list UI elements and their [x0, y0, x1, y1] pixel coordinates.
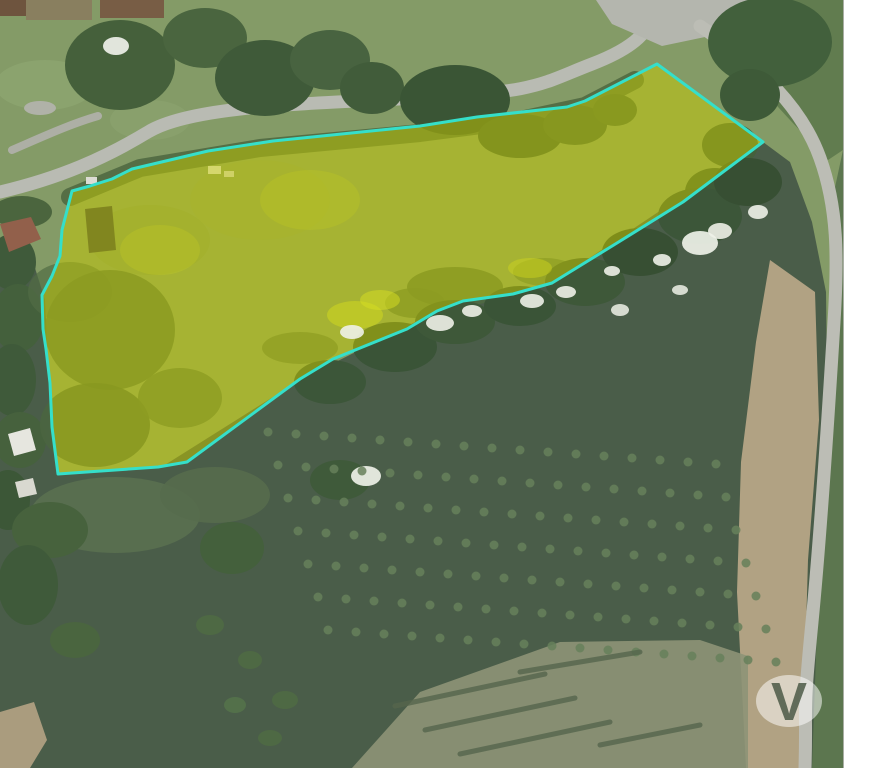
orchard-row-dots — [442, 473, 451, 482]
orchard-row-dots — [480, 508, 489, 517]
orchard-row-dots — [572, 450, 581, 459]
orchard-row-dots — [376, 436, 385, 445]
orchard-row-dots — [694, 491, 703, 500]
tree-cluster — [50, 622, 100, 658]
orchard-row-dots — [388, 566, 397, 575]
orchard-row-dots — [350, 531, 359, 540]
orchard-row-dots — [724, 590, 733, 599]
orchard-row-dots — [398, 599, 407, 608]
meadow-patch — [160, 467, 270, 523]
orchard-row-dots — [518, 543, 527, 552]
orchard-row-dots — [742, 559, 751, 568]
orchard-row-dots — [416, 568, 425, 577]
orchard-row-dots — [622, 615, 631, 624]
orchard-row-dots — [292, 430, 301, 439]
garden-plot — [100, 0, 164, 18]
aerial-photo: V — [0, 0, 843, 768]
garden-plot — [26, 0, 92, 20]
orchard-row-dots — [358, 467, 367, 476]
orchard-row-dots — [706, 621, 715, 630]
orchard-row-dots — [492, 638, 501, 647]
orchard-row-dots — [352, 628, 361, 637]
orchard-row-dots — [432, 440, 441, 449]
orchard-row-dots — [660, 650, 669, 659]
orchard-row-dots — [436, 634, 445, 643]
tree-cluster — [708, 0, 832, 87]
parcel-bright-patch — [260, 170, 360, 230]
orchard-row-dots — [342, 595, 351, 604]
orchard-row-dots — [536, 512, 545, 521]
garden-plot — [0, 0, 26, 16]
small-tree — [272, 691, 298, 709]
orchard-row-dots — [396, 502, 405, 511]
orchard-row-dots — [520, 640, 529, 649]
orchard-row-dots — [470, 475, 479, 484]
orchard-row-dots — [576, 644, 585, 653]
orchard-row-dots — [508, 510, 517, 519]
tree-cluster — [340, 62, 404, 114]
orchard-row-dots — [324, 626, 333, 635]
orchard-row-dots — [676, 522, 685, 531]
orchard-row-dots — [460, 442, 469, 451]
orchard-row-dots — [472, 572, 481, 581]
parcel-bright-patch — [508, 258, 552, 278]
blossom-tree — [340, 325, 364, 339]
orchard-row-dots — [498, 477, 507, 486]
orchard-row-dots — [380, 630, 389, 639]
orchard-row-dots — [462, 539, 471, 548]
orchard-row-dots — [704, 524, 713, 533]
blossom-tree — [103, 37, 129, 55]
orchard-row-dots — [648, 520, 657, 529]
orchard-row-dots — [762, 625, 771, 634]
blossom-tree — [653, 254, 671, 266]
orchard-row-dots — [294, 527, 303, 536]
orchard-row-dots — [332, 562, 341, 571]
tree-cluster — [720, 69, 780, 121]
orchard-row-dots — [312, 496, 321, 505]
orchard-row-dots — [666, 489, 675, 498]
orchard-row-dots — [658, 553, 667, 562]
small-tree — [258, 730, 282, 746]
orchard-row-dots — [600, 452, 609, 461]
orchard-row-dots — [340, 498, 349, 507]
orchard-row-dots — [302, 463, 311, 472]
orchard-row-dots — [424, 504, 433, 513]
right-margin-strip — [843, 0, 872, 768]
orchard-row-dots — [638, 487, 647, 496]
orchard-row-dots — [378, 533, 387, 542]
orchard-row-dots — [314, 593, 323, 602]
orchard-row-dots — [656, 456, 665, 465]
orchard-row-dots — [566, 611, 575, 620]
orchard-row-dots — [574, 547, 583, 556]
orchard-row-dots — [490, 541, 499, 550]
orchard-row-dots — [368, 500, 377, 509]
orchard-row-dots — [414, 471, 423, 480]
blossom-tree — [556, 286, 576, 298]
orchard-row-dots — [620, 518, 629, 527]
orchard-row-dots — [556, 578, 565, 587]
orchard-row-dots — [772, 658, 781, 667]
driveway-pad — [24, 101, 56, 115]
orchard-row-dots — [546, 545, 555, 554]
orchard-row-dots — [370, 597, 379, 606]
orchard-row-dots — [712, 460, 721, 469]
orchard-row-dots — [696, 588, 705, 597]
small-tree — [224, 697, 246, 713]
blossom-tree — [426, 315, 454, 331]
orchard-row-dots — [320, 432, 329, 441]
orchard-row-dots — [408, 632, 417, 641]
blossom-tree — [604, 266, 620, 276]
orchard-row-dots — [688, 652, 697, 661]
orchard-row-dots — [592, 516, 601, 525]
blossom-tree — [520, 294, 544, 308]
orchard-row-dots — [454, 603, 463, 612]
tree-cluster — [65, 20, 175, 110]
orchard-row-dots — [604, 646, 613, 655]
orchard-row-dots — [404, 438, 413, 447]
orchard-row-dots — [594, 613, 603, 622]
orchard-row-dots — [464, 636, 473, 645]
orchard-row-dots — [452, 506, 461, 515]
aerial-parcel-screenshot: V — [0, 0, 872, 768]
orchard-row-dots — [678, 619, 687, 628]
orchard-row-dots — [602, 549, 611, 558]
orchard-row-dots — [732, 526, 741, 535]
orchard-row-dots — [510, 607, 519, 616]
orchard-row-dots — [734, 623, 743, 632]
orchard-row-dots — [554, 481, 563, 490]
small-tree — [196, 615, 224, 635]
blossom-tree — [708, 223, 732, 239]
orchard-row-dots — [752, 592, 761, 601]
small-tree — [238, 651, 262, 669]
orchard-row-dots — [386, 469, 395, 478]
orchard-row-dots — [482, 605, 491, 614]
orchard-row-dots — [610, 485, 619, 494]
orchard-row-dots — [434, 537, 443, 546]
orchard-row-dots — [348, 434, 357, 443]
blossom-tree — [462, 305, 482, 317]
orchard-row-dots — [668, 586, 677, 595]
watermark-letter: V — [771, 672, 807, 732]
orchard-row-dots — [722, 493, 731, 502]
orchard-row-dots — [538, 609, 547, 618]
orchard-row-dots — [582, 483, 591, 492]
orchard-row-dots — [406, 535, 415, 544]
orchard-row-dots — [488, 444, 497, 453]
orchard-row-dots — [264, 428, 273, 437]
orchard-row-dots — [584, 580, 593, 589]
orchard-row-dots — [744, 656, 753, 665]
orchard-row-dots — [564, 514, 573, 523]
orchard-row-dots — [684, 458, 693, 467]
blossom-tree — [672, 285, 688, 295]
orchard-row-dots — [714, 557, 723, 566]
orchard-row-dots — [500, 574, 509, 583]
orchard-row-dots — [330, 465, 339, 474]
blossom-tree — [611, 304, 629, 316]
orchard-row-dots — [526, 479, 535, 488]
orchard-row-dots — [284, 494, 293, 503]
orchard-row-dots — [444, 570, 453, 579]
orchard-row-dots — [516, 446, 525, 455]
orchard-row-dots — [612, 582, 621, 591]
orchard-row-dots — [274, 461, 283, 470]
orchard-row-dots — [426, 601, 435, 610]
orchard-row-dots — [548, 642, 557, 651]
orchard-row-dots — [686, 555, 695, 564]
orchard-row-dots — [360, 564, 369, 573]
tree-cluster — [200, 522, 264, 574]
orchard-row-dots — [322, 529, 331, 538]
orchard-row-dots — [716, 654, 725, 663]
tree-cluster — [0, 545, 58, 625]
orchard-row-dots — [650, 617, 659, 626]
blossom-tree — [748, 205, 768, 219]
orchard-row-dots — [640, 584, 649, 593]
orchard-row-dots — [528, 576, 537, 585]
orchard-row-dots — [628, 454, 637, 463]
orchard-row-dots — [544, 448, 553, 457]
parcel-bright-patch — [120, 225, 200, 275]
orchard-row-dots — [304, 560, 313, 569]
orchard-row-dots — [630, 551, 639, 560]
parcel-bright-patch — [360, 290, 400, 310]
aerial-photo-canvas: V — [0, 0, 843, 768]
